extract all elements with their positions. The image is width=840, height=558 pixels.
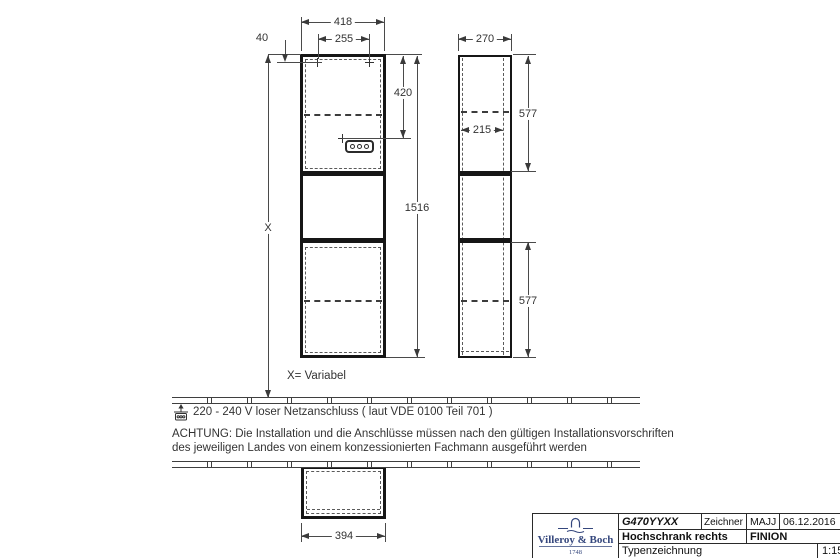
drafter-initials: MAJJ (750, 517, 776, 529)
arrow-icon (414, 349, 420, 357)
arrow-icon (400, 56, 406, 64)
arrow-icon (525, 349, 531, 357)
villeroy-boch-logo: Villeroy & Boch 1748 (534, 515, 617, 556)
plan-view-inner-dash (307, 509, 380, 510)
drawing-date: 06.12.2016 (783, 517, 836, 529)
dim-front-width: 418 (331, 16, 355, 28)
arrow-icon (525, 56, 531, 64)
arrow-icon (301, 19, 309, 25)
dim-base-width: 394 (332, 530, 356, 542)
ext-line (369, 34, 370, 59)
ext-line (386, 54, 422, 55)
ext-line (385, 523, 386, 542)
ext-line-socket (342, 138, 411, 139)
side-shelf-upper (461, 111, 509, 113)
front-open-compartment-top (302, 171, 384, 176)
wall-hatch-upper (172, 397, 640, 404)
arrow-icon (376, 19, 384, 25)
power-note: 220 - 240 V loser Netzanschluss ( laut V… (193, 406, 493, 420)
dim-upper-section: 577 (516, 108, 540, 120)
arrow-icon (318, 36, 326, 42)
dim-shelf-depth: 215 (470, 124, 494, 136)
ext-line (513, 357, 536, 358)
arrow-icon (361, 36, 369, 42)
side-open-compartment-bottom (459, 238, 511, 243)
ext-line-holes (277, 62, 322, 63)
front-open-compartment-bottom (302, 238, 384, 243)
side-shelf-lower (461, 300, 509, 302)
article-number: G470YYXX (622, 516, 678, 528)
brand-name: Villeroy & Boch (538, 534, 614, 546)
wall-hatch-lower (172, 461, 640, 468)
title-block-divider (779, 514, 780, 529)
drawing-scale: 1:15 (822, 545, 840, 557)
arrow-icon (400, 130, 406, 138)
side-bottom-dash (461, 351, 509, 352)
arrow-icon (461, 127, 469, 133)
title-block-divider (618, 514, 619, 558)
title-block: Villeroy & Boch 1748 G470YYXX Zeichner M… (532, 513, 840, 558)
plan-view-inner-outline (306, 471, 381, 514)
title-block-divider (817, 543, 818, 558)
x-variable-note: X= Variabel (287, 370, 346, 384)
ext-line (511, 171, 536, 172)
brand-year: 1748 (569, 549, 582, 556)
fixing-hole-cross-right (365, 58, 374, 67)
dim-depth: 270 (473, 33, 497, 45)
warning-note-line2: des jeweiligen Landes von einem konzessi… (172, 442, 587, 456)
product-name: Hochschrank rechts (622, 531, 728, 543)
arrow-icon (458, 36, 466, 42)
title-block-divider (701, 514, 702, 529)
dim-hole-offset: 40 (253, 32, 271, 44)
arrow-icon (282, 54, 288, 62)
arrow-icon (301, 533, 309, 539)
warning-note-line1: ACHTUNG: Die Installation und die Anschl… (172, 428, 674, 442)
dim-socket-drop: 420 (391, 87, 415, 99)
series-name: FINION (750, 531, 787, 543)
arrow-icon (414, 56, 420, 64)
dim-hole-spacing: 255 (332, 33, 356, 45)
title-block-divider (618, 543, 840, 544)
arrow-icon (525, 163, 531, 171)
plug-icon (172, 404, 190, 421)
side-door-dash-right (503, 58, 504, 355)
power-socket-icon (345, 140, 374, 153)
dim-lower-section: 577 (516, 295, 540, 307)
arrow-icon (265, 55, 271, 63)
ext-line (511, 34, 512, 51)
arrow-icon (377, 533, 385, 539)
side-open-compartment-top (459, 171, 511, 176)
front-shelf-upper (304, 114, 382, 116)
ext-line (386, 357, 425, 358)
drawing-type: Typenzeichnung (622, 545, 702, 557)
dim-line-40 (285, 40, 286, 55)
dim-cabinet-height: 1516 (402, 202, 432, 214)
arrow-icon (495, 127, 503, 133)
arrow-icon (503, 36, 511, 42)
arrow-icon (525, 242, 531, 250)
front-shelf-lower (304, 300, 382, 302)
ext-line (384, 17, 385, 51)
dim-x-label: X (261, 222, 274, 234)
side-door-dash-left (462, 58, 463, 355)
ext-line (513, 54, 536, 55)
ext-line (511, 242, 536, 243)
title-block-divider (746, 514, 747, 543)
arrow-icon (265, 390, 271, 398)
technical-drawing-page: 418 255 40 270 X 420 1516 215 577 577 (0, 0, 840, 558)
drafter-label: Zeichner (704, 517, 743, 528)
